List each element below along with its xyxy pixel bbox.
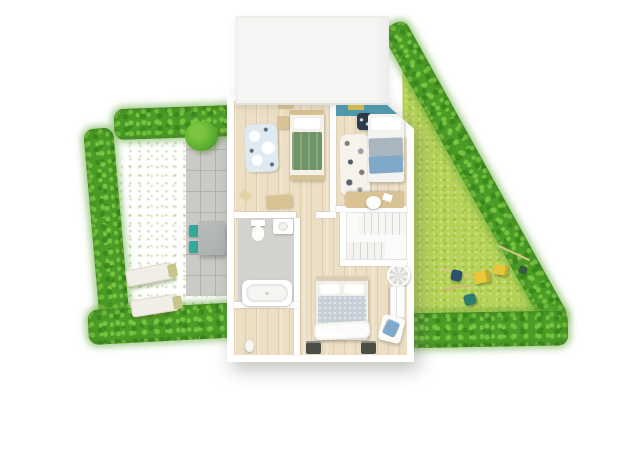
garden-bush	[185, 121, 218, 151]
patio-dining-table	[198, 221, 225, 255]
nightstand-dark	[361, 341, 376, 354]
toilet-bowl	[252, 226, 264, 241]
bed-green-pillow	[293, 117, 321, 130]
white-throw	[314, 321, 371, 341]
wall-hall-mid	[316, 212, 336, 218]
bed-green-footboard	[290, 175, 324, 180]
stairs-lower-flight	[347, 242, 385, 259]
wall-bedroom-divider	[330, 102, 336, 212]
house	[227, 94, 414, 362]
desk-chair	[366, 196, 381, 209]
vase	[245, 340, 254, 352]
bed-blue-pillow	[370, 116, 402, 131]
wardrobe	[390, 286, 405, 318]
bathtub-drain	[265, 292, 269, 295]
stairs-upper-flight	[358, 213, 406, 235]
bed-blue-throw	[369, 155, 404, 174]
nightstand-dark	[306, 341, 321, 354]
roof-block	[236, 16, 389, 105]
lounger-cushion	[172, 295, 183, 309]
left-garden-hedge-top	[113, 105, 236, 140]
nightstand-small	[277, 116, 289, 129]
round-chair	[387, 264, 410, 287]
pillow	[343, 283, 365, 296]
play-rug-clouds	[244, 123, 279, 172]
bed-green-headboard	[290, 110, 324, 115]
vanity-bowl	[278, 222, 288, 231]
animal-print-rug	[339, 134, 370, 197]
bed-green-blanket	[292, 132, 322, 170]
pillow	[319, 282, 342, 295]
bench	[266, 194, 293, 209]
floor-plan-scene	[0, 0, 640, 469]
wall-master-left	[294, 218, 300, 355]
bed-headboard	[316, 276, 368, 281]
right-garden-hedge-bottom	[392, 310, 569, 348]
toy-truck-yellow	[493, 264, 508, 276]
